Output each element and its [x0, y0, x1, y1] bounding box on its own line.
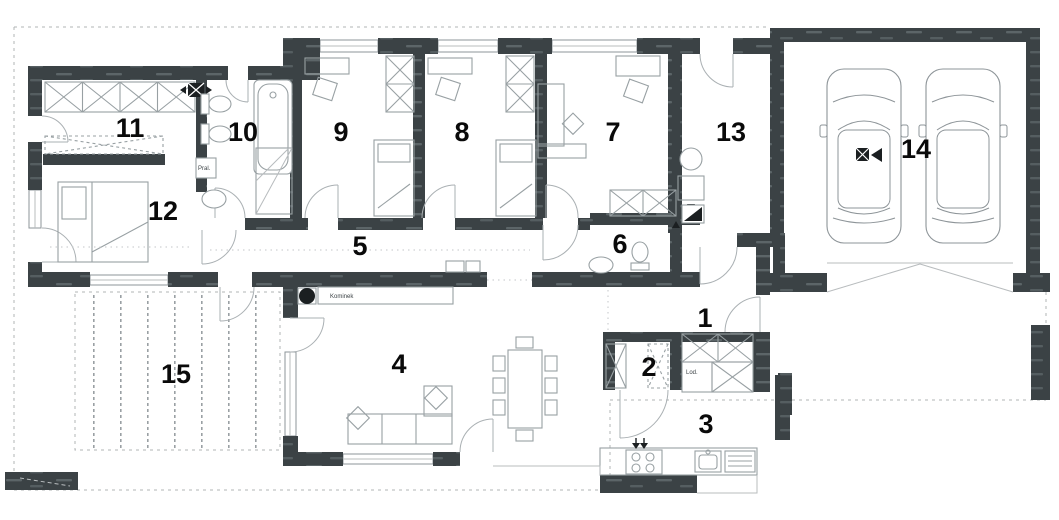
window: [552, 40, 637, 52]
washer-label: Pral.: [198, 166, 211, 172]
room-label-10: 10: [228, 117, 258, 147]
room8-furniture: [428, 56, 536, 216]
door-room7: [546, 185, 578, 218]
floor-plan-drawing: Pral.: [0, 0, 1059, 520]
room-label-9: 9: [333, 117, 348, 147]
window: [320, 40, 378, 52]
room-label-1: 1: [697, 303, 712, 333]
washer-icon: Pral.: [196, 158, 216, 178]
door-entry: [725, 297, 760, 332]
door-pantry: [620, 390, 668, 438]
hall-wardrobe-icon: Lod.: [682, 334, 753, 392]
bidet-icon: [201, 124, 231, 144]
window: [285, 352, 296, 436]
window: [343, 454, 433, 464]
pantry-shelves: [606, 344, 668, 388]
car-icon: [919, 69, 1007, 243]
room-label-14: 14: [901, 134, 931, 164]
door-room8: [422, 185, 455, 218]
window: [438, 40, 498, 52]
sofa-icon: [347, 386, 452, 444]
door-room10-top: [226, 80, 248, 102]
room-label-3: 3: [698, 409, 713, 439]
room-label-4: 4: [391, 349, 406, 379]
room-label-6: 6: [612, 229, 627, 259]
door-living-terrace: [290, 318, 324, 352]
room-label-13: 13: [716, 117, 746, 147]
room-label-5: 5: [352, 231, 367, 261]
window: [90, 275, 168, 285]
room-label-11: 11: [116, 113, 145, 143]
corridor-cabinets: [446, 261, 480, 272]
garage-door: [827, 263, 1013, 292]
wc-toilet-icon: [631, 242, 649, 270]
sink-icon: [695, 450, 721, 472]
toilet-icon: [201, 94, 231, 114]
door-room9: [305, 185, 338, 218]
door-room13-room1: [700, 247, 737, 284]
fireplace-icon: Kominek: [298, 287, 453, 304]
floor-plan: Pral.: [0, 0, 1059, 520]
wc-basin-icon: [589, 257, 613, 273]
door-living-garden: [460, 419, 493, 452]
dining-table-icon: [493, 337, 557, 441]
room-label-7: 7: [605, 117, 620, 147]
bed-icon: [58, 182, 148, 262]
door-room12: [202, 230, 236, 264]
door-room13-top: [700, 54, 733, 87]
window: [29, 190, 41, 228]
room9-furniture: [305, 56, 414, 216]
room-label-2: 2: [641, 352, 656, 382]
door-room12-terrace: [42, 228, 76, 262]
room-label-12: 12: [148, 196, 178, 226]
fridge-label: Lod.: [686, 370, 698, 376]
door-corridor-end: [543, 225, 578, 260]
door-room11-exterior: [42, 116, 68, 142]
room-label-15: 15: [161, 359, 191, 389]
fireplace-label: Kominek: [330, 294, 354, 300]
stove-icon: [626, 438, 662, 474]
room-label-8: 8: [454, 117, 469, 147]
dishwasher-icon: [725, 451, 755, 472]
bathtub-icon: [254, 80, 292, 174]
washbasin-icon: [202, 190, 226, 208]
